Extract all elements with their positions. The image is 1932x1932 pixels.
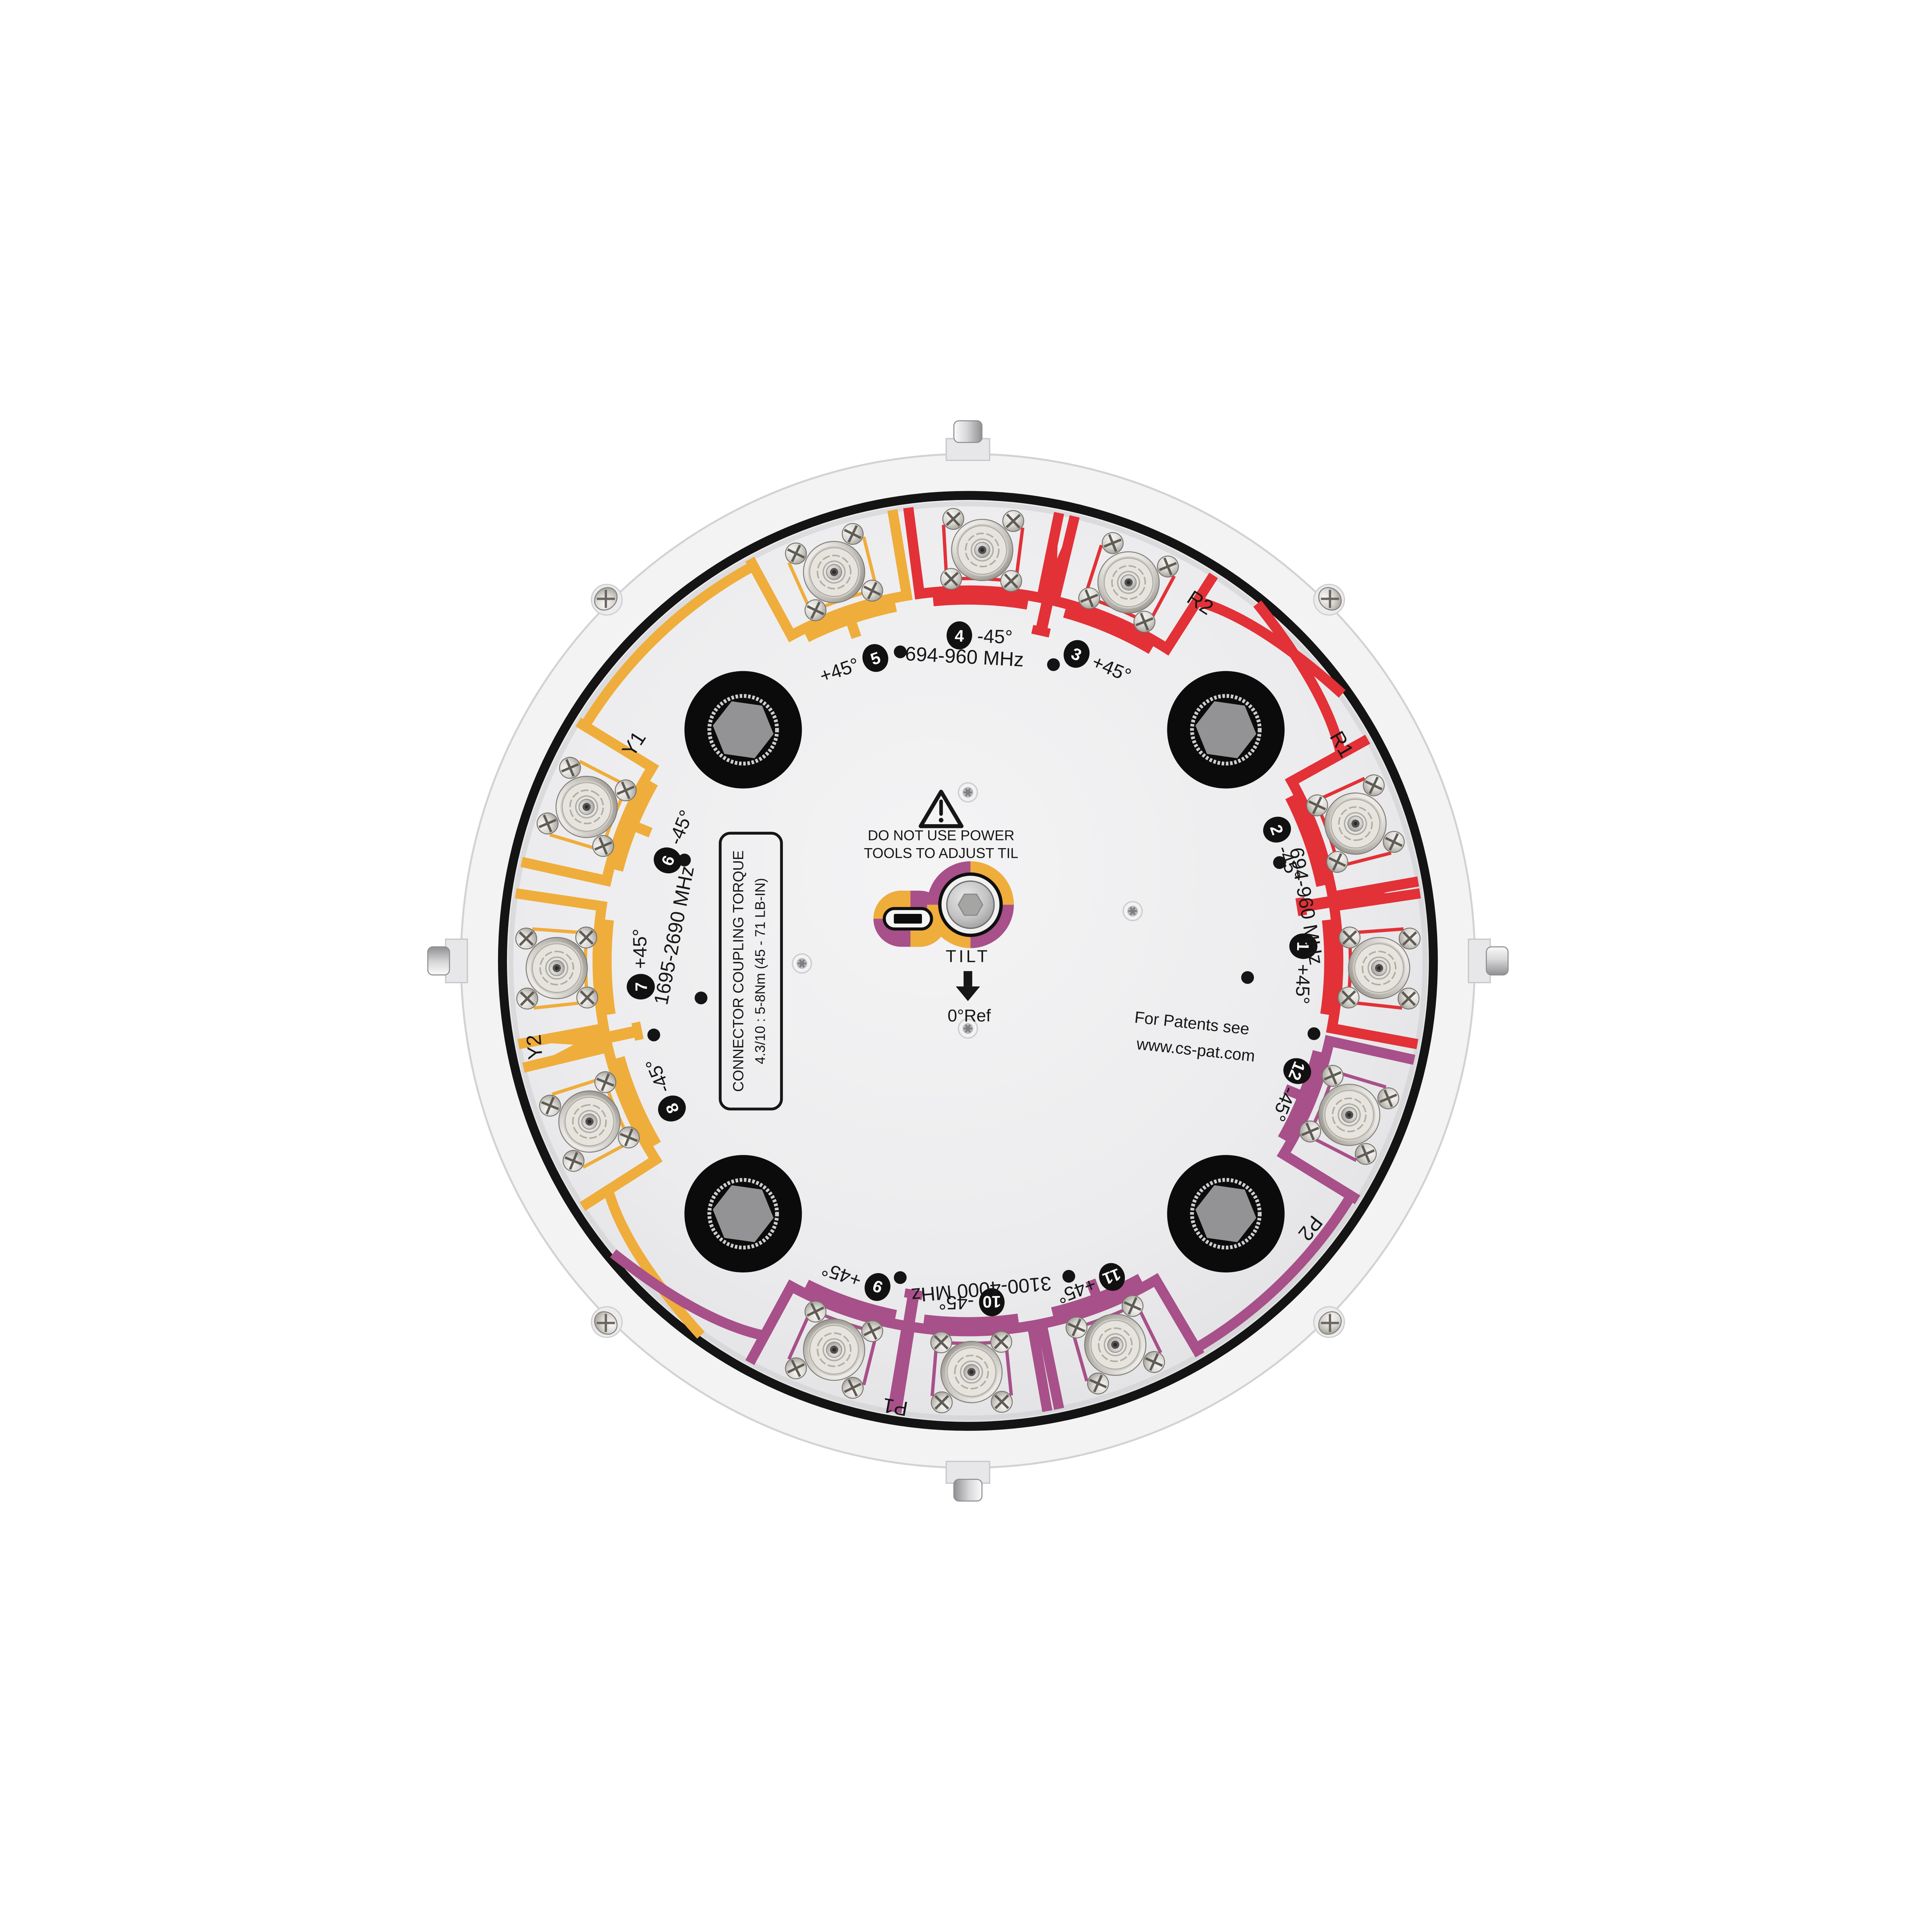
torx-screw-icon [959,783,978,802]
torque-line2: 4.3/10 : 5-8Nm (45 - 71 LB-IN) [753,878,768,1064]
tilt-lock-bar [894,914,922,923]
mounting-hole [1167,671,1284,789]
rim-stud [946,1461,990,1501]
rim-stud-pin [954,1479,982,1501]
trace-pad-bar [606,920,610,1015]
port-number: 7 [632,982,651,992]
rim-stud-pin [954,421,982,442]
trace-pad-bar [1326,920,1330,1015]
connector-port-7[interactable] [515,927,598,1009]
mounting-hole [1167,1155,1284,1272]
trace-pad-bar [933,599,1028,604]
tilt-hex-socket[interactable] [958,894,983,915]
rim-stud [1468,939,1508,983]
dot-marker [695,992,707,1004]
connector-port-4[interactable] [940,508,1024,592]
dot-marker [1241,971,1254,984]
dot-marker [647,1029,660,1041]
rim-stud [428,939,467,983]
torx-screw-icon [793,954,811,973]
trace-feed-tip [633,1030,642,1032]
group-label-p1: P1 [881,1393,910,1420]
rim-stud-pin [1486,947,1508,975]
antenna-bottom-plate-photo: DO NOT USE POWER TOOLS TO ADJUST TIL CON… [0,0,1932,1932]
trace-pad-bar [924,1319,1019,1323]
port-number: 4 [954,627,964,646]
tilt-label: TILT [946,947,990,966]
connector-port-10[interactable] [931,1331,1012,1413]
warning-line2: TOOLS TO ADJUST TIL [864,845,1019,861]
mounting-hole [684,671,802,789]
warning-line1: DO NOT USE POWER [868,827,1015,843]
group-label-y2: Y2 [522,1034,547,1061]
dot-marker [894,1271,906,1284]
port-polarization-label: +45° [629,929,651,969]
port-polarization-label: -45° [977,625,1013,648]
connector-port-1[interactable] [1338,927,1420,1009]
rim-stud-pin [428,947,449,975]
port-polarization-label: +45° [1292,964,1314,1005]
trace-feed-tip [1040,627,1042,635]
torque-line1: CONNECTOR COUPLING TORQUE [730,850,747,1092]
dot-marker [1047,658,1060,671]
mounting-hole [684,1155,802,1272]
tilt-ref-label: 0°Ref [947,1007,991,1026]
dot-marker [1308,1027,1320,1040]
torx-screw-icon [1123,901,1142,920]
rim-stud [946,421,990,460]
